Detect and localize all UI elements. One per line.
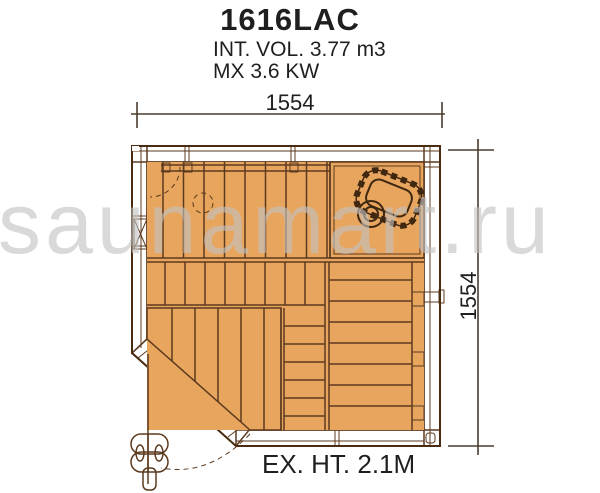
dimension-height-line <box>448 139 494 455</box>
corner-notch <box>132 146 139 151</box>
floor-plan-drawing <box>0 0 600 493</box>
door-handle-icon <box>131 434 168 490</box>
wall-top <box>132 146 440 162</box>
dimension-width-line <box>131 102 445 128</box>
dimension-line <box>131 102 445 128</box>
wall-bottom <box>236 430 440 446</box>
dimension-line <box>448 139 494 455</box>
wall-right <box>424 146 440 446</box>
